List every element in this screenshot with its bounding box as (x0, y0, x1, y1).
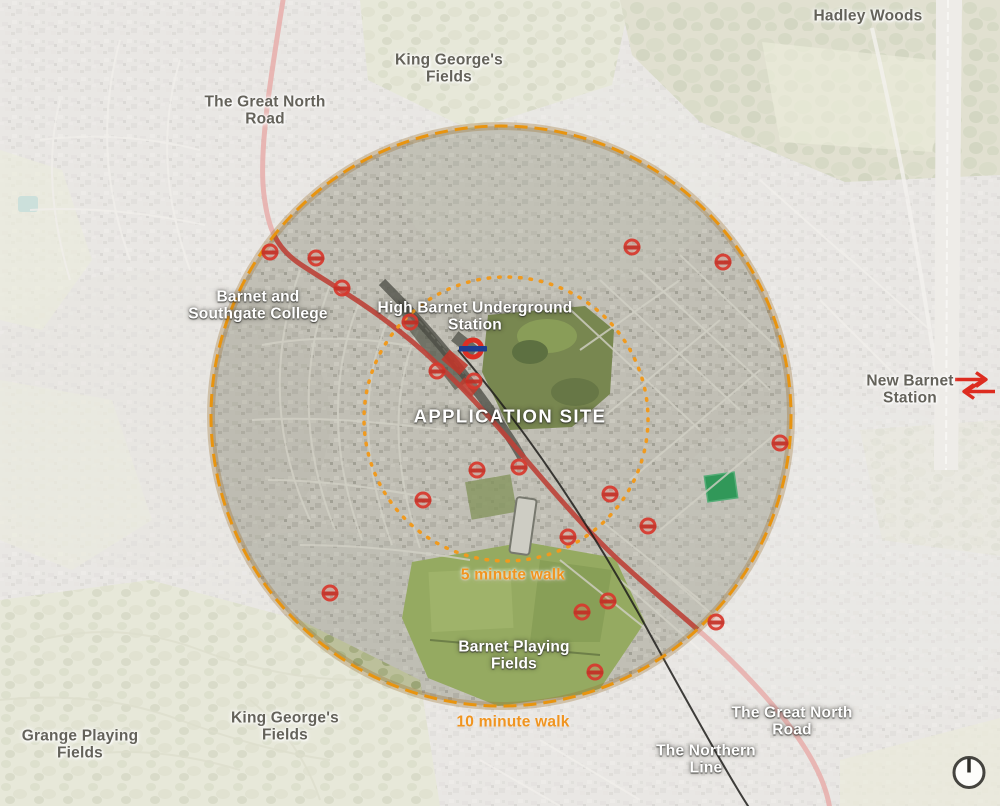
label-new-barnet-station: New BarnetStation (866, 373, 953, 408)
bus-stop-roundel-marker (574, 604, 591, 621)
label-great-north-road-bottom: The Great NorthRoad (732, 705, 853, 740)
bus-stop-roundel-marker (511, 459, 528, 476)
label-hadley-woods: Hadley Woods (814, 7, 923, 24)
label-five-minute-walk: 5 minute walk (461, 566, 565, 583)
bus-stop-roundel-marker (560, 529, 577, 546)
label-great-north-road-top: The Great NorthRoad (205, 94, 326, 129)
label-grange-playing-fields: Grange PlayingFields (22, 728, 139, 763)
bus-stop-roundel-marker (262, 244, 279, 261)
bus-stop-roundel-marker (624, 239, 641, 256)
bus-stop-roundel-marker (469, 462, 486, 479)
bus-stop-roundel-marker (708, 614, 725, 631)
label-barnet-southgate-college: Barnet andSouthgate College (188, 289, 327, 324)
map-annotations: Hadley WoodsKing George'sFieldsThe Great… (0, 0, 1000, 806)
north-compass-icon (950, 754, 988, 797)
underground-roundel-icon (458, 336, 488, 367)
bus-stop-roundel-marker (772, 435, 789, 452)
label-ten-minute-walk: 10 minute walk (456, 713, 569, 730)
bus-stop-roundel-marker (415, 492, 432, 509)
label-king-georges-fields-top: King George'sFields (395, 52, 503, 87)
bus-stop-roundel-marker (640, 518, 657, 535)
bus-stop-roundel-marker (587, 664, 604, 681)
bus-stop-roundel-marker (466, 373, 483, 390)
label-application-site: APPLICATION SITE (414, 407, 607, 428)
bus-stop-roundel-marker (402, 314, 419, 331)
bus-stop-roundel-marker (600, 593, 617, 610)
bus-stop-roundel-marker (715, 254, 732, 271)
bus-stop-roundel-marker (322, 585, 339, 602)
site-location-walking-distance-map: Hadley WoodsKing George'sFieldsThe Great… (0, 0, 1000, 806)
bus-stop-roundel-marker (602, 486, 619, 503)
bus-stop-roundel-marker (334, 280, 351, 297)
bus-stop-roundel-marker (429, 363, 446, 380)
bus-stop-roundel-marker (308, 250, 325, 267)
label-barnet-playing-fields: Barnet PlayingFields (458, 639, 569, 674)
national-rail-icon (954, 372, 996, 405)
label-northern-line: The NorthernLine (656, 743, 756, 778)
label-king-georges-fields-bottom: King George'sFields (231, 710, 339, 745)
